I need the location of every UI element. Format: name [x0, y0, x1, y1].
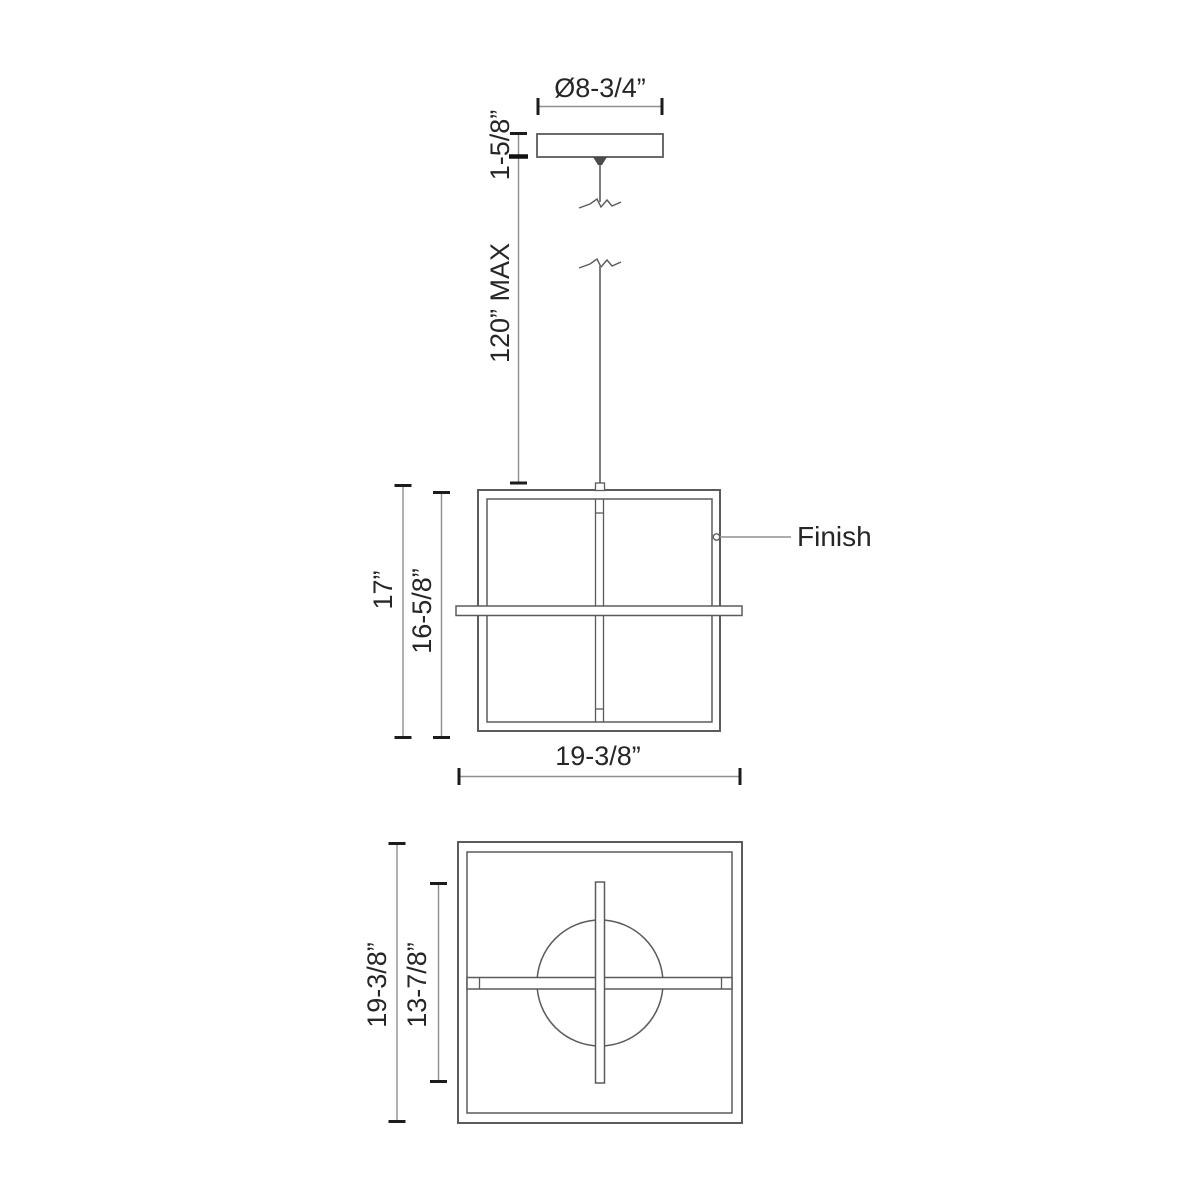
dimension-drawing: Ø8-3/4” 1-5/8” 120” MAX [0, 0, 1200, 1200]
canopy-view: Ø8-3/4” 1-5/8” 120” MAX [485, 73, 663, 483]
cable-connector [596, 483, 605, 491]
dim-inner-span-label: 13-7/8” [402, 942, 432, 1028]
dim-canopy-height-label: 1-5/8” [485, 110, 515, 181]
bottom-vertical-bar [596, 882, 605, 1083]
finish-callout-circle [713, 534, 719, 540]
dim-frame-height-label: 16-5/8” [407, 568, 437, 654]
dim-overall-depth-label: 19-3/8” [362, 942, 392, 1028]
finish-label: Finish [797, 521, 872, 552]
bottom-view: 19-3/8” 13-7/8” [362, 842, 742, 1123]
drawing-canvas: Ø8-3/4” 1-5/8” 120” MAX [0, 0, 1200, 1200]
canopy-outline [537, 134, 663, 157]
cable-grip [593, 157, 607, 165]
cross-bar [456, 606, 742, 616]
dim-overall-height-label: 17” [368, 570, 398, 609]
dim-overall-width-label: 19-3/8” [555, 741, 641, 771]
front-view: Finish 17” 16-5/8” 19-3/8” [368, 483, 872, 785]
dim-suspension-max-label: 120” MAX [485, 243, 515, 363]
dim-canopy-diameter-label: Ø8-3/4” [554, 73, 646, 103]
